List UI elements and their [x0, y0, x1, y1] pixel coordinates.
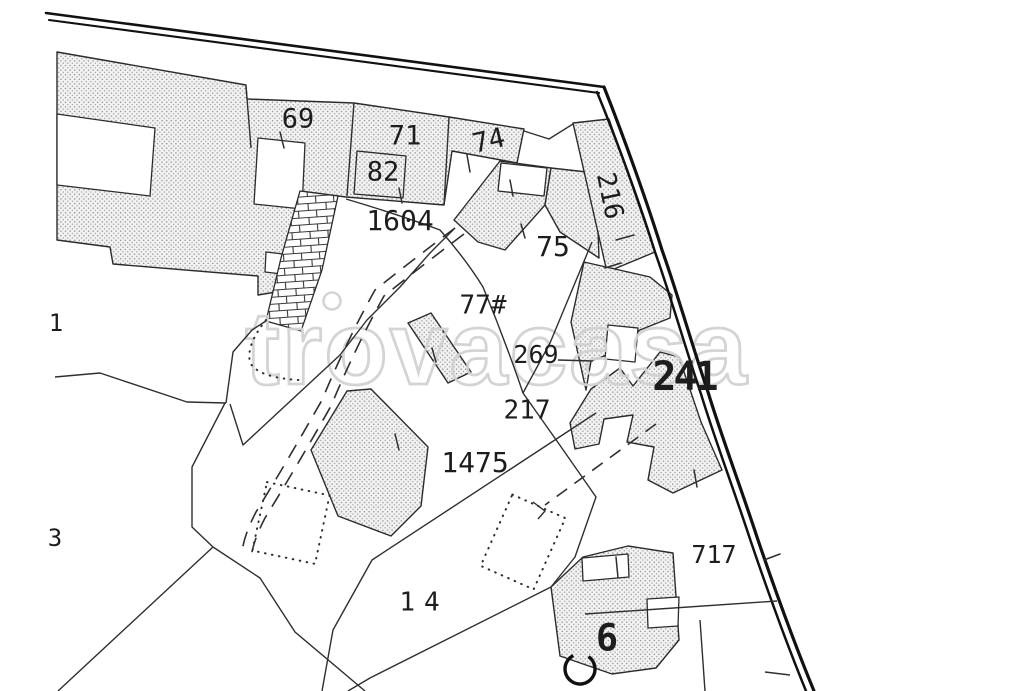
line-west-1	[55, 373, 226, 403]
tick	[467, 155, 470, 172]
parcel-label-edge-1: 1	[49, 309, 63, 337]
courtyard-ne-notch	[498, 163, 547, 196]
line-south-stub	[765, 672, 790, 675]
parcel-label-717: 717	[691, 540, 736, 569]
parcel-label-1604: 1604	[366, 204, 433, 237]
leader-269	[558, 360, 593, 361]
dotted-court-center	[481, 495, 566, 590]
corner-mark-center	[533, 502, 545, 519]
courtyard-west	[57, 114, 155, 196]
line-sw-fork	[213, 547, 365, 691]
courtyard-6-top	[582, 554, 629, 581]
tick	[764, 554, 780, 560]
parcel-label-71: 71	[389, 121, 422, 152]
parcel-label-241: 241	[652, 354, 717, 400]
dotted-court-sw	[252, 482, 329, 564]
line-west-2	[192, 403, 225, 547]
parcel-label-1475: 1475	[441, 446, 508, 479]
line-sw-long	[58, 547, 213, 691]
parcel-label-14: 14	[399, 588, 448, 618]
parcel-label-75: 75	[536, 230, 570, 263]
courtyard-6-right	[647, 597, 679, 628]
line-ne-corner	[524, 124, 573, 139]
parcel-label-69: 69	[282, 104, 315, 135]
cadastral-map-view: trovacasa	[0, 0, 1024, 691]
parcel-label-77: 77#	[460, 291, 507, 321]
parcel-label-217: 217	[504, 396, 551, 426]
map-canvas: trovacasa	[0, 0, 1024, 691]
parcel-label-edge-3: 3	[48, 524, 62, 552]
parcel-label-269: 269	[513, 340, 558, 369]
line-south-vertical	[700, 620, 705, 691]
parcel-label-82: 82	[367, 157, 400, 188]
line-14-south	[348, 587, 551, 691]
parcel-label-6: 6	[596, 617, 618, 660]
